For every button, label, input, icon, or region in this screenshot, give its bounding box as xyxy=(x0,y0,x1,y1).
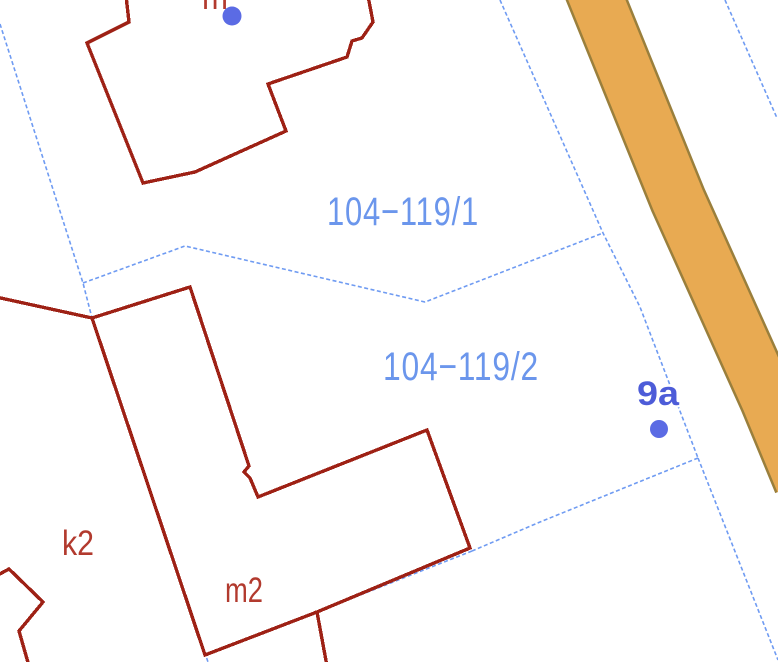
address-point-marker-icon xyxy=(650,420,668,438)
boundary-line-top-right-corner xyxy=(725,0,777,118)
boundary-line-left xyxy=(0,24,92,318)
building-outline-bottom-left xyxy=(0,569,43,662)
building-label-m2: m2 xyxy=(225,571,263,610)
house-number-label-9a: 9a xyxy=(637,375,680,413)
parcel-label-104-119-1: 104−119/1 xyxy=(327,190,479,234)
boundary-line-parcel-split xyxy=(83,233,603,302)
road xyxy=(592,0,778,482)
map-viewport[interactable]: 104−119/1 104−119/2 k2 m2 m 9a xyxy=(0,0,778,662)
building-outline-top xyxy=(87,0,373,183)
building-outline-middle-branch xyxy=(317,612,327,662)
parcel-label-104-119-2: 104−119/2 xyxy=(383,345,539,389)
map-canvas[interactable]: 104−119/1 104−119/2 k2 m2 m 9a xyxy=(0,0,778,662)
address-point-marker-icon xyxy=(223,7,242,26)
road-surface xyxy=(592,0,778,482)
boundary-line-bottom-right xyxy=(698,458,778,660)
boundary-line-lower-split xyxy=(472,458,698,551)
building-label-k2: k2 xyxy=(62,524,94,563)
